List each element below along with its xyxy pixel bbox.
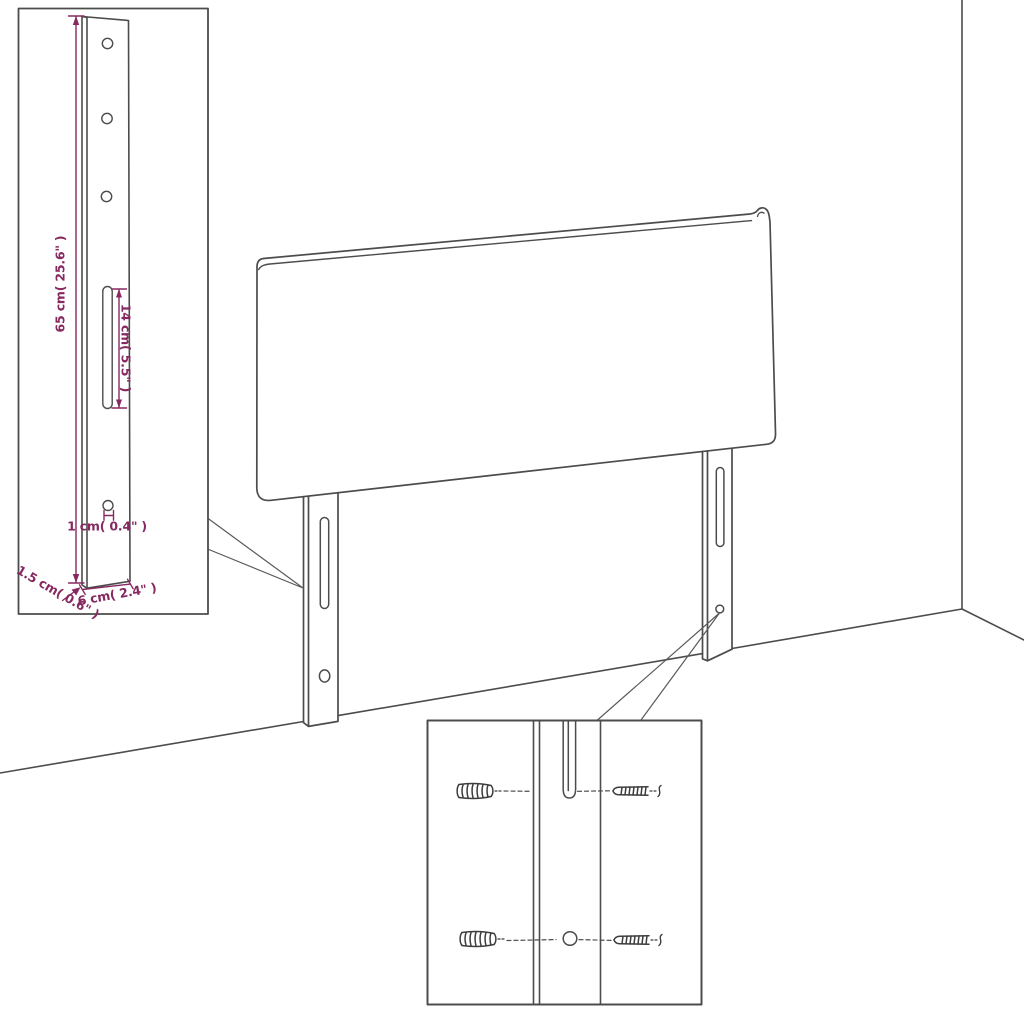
wall-plug-top [457, 784, 501, 799]
leg-left-hole [319, 670, 329, 682]
panel-top-right-curl [758, 212, 765, 216]
leg-right-outline [703, 448, 733, 661]
panel-outline [257, 208, 776, 501]
mounting-leg-strip [534, 721, 601, 1004]
inset-mounting-detail [428, 721, 702, 1005]
bracket-hole-2 [102, 113, 112, 123]
panel-top-inner-edge [259, 221, 752, 270]
bracket-slot [103, 287, 112, 409]
dim-arrow-65cm-top [73, 16, 79, 25]
bracket-outline [82, 17, 130, 589]
label-slot-length: 14 cm( 5.5" ) [119, 304, 134, 392]
dim-arrow-65cm-bottom [73, 574, 79, 583]
label-bracket-height: 65 cm( 25.6" ) [53, 236, 68, 333]
mounting-hole [563, 932, 577, 946]
bracket-hole-3 [101, 191, 111, 201]
floor-line-left [0, 609, 962, 773]
screw-bottom [614, 935, 662, 946]
headboard-panel [257, 208, 776, 501]
dim-arrow-14cm-top [116, 289, 122, 298]
leader-dashes [504, 791, 612, 941]
leg-right-hole [716, 605, 724, 613]
inset-mounting-border [428, 721, 702, 1005]
leg-left-slot [320, 518, 328, 609]
room-corner-lines [0, 0, 1024, 773]
callout-lines [209, 519, 720, 720]
dim-arrow-14cm-bottom [116, 400, 122, 409]
callout-to-mounting-inset [598, 613, 720, 720]
bracket-hole-4 [103, 501, 113, 511]
bracket-hole-1 [102, 38, 112, 48]
label-hole-diameter: 1 cm( 0.4" ) [67, 519, 147, 534]
floor-line-right [962, 609, 1024, 640]
headboard-leg-right [703, 448, 733, 661]
mounting-slot [563, 721, 575, 798]
callout-to-bracket-inset [209, 519, 303, 588]
wall-plug-bottom [460, 932, 504, 947]
diagram-lineart [0, 0, 1024, 1024]
leg-right-slot [716, 468, 724, 547]
headboard-leg-left [304, 493, 339, 727]
screw-top [613, 786, 661, 797]
diagram-canvas: 65 cm( 25.6" ) 14 cm( 5.5" ) 1 cm( 0.4" … [0, 0, 1024, 1024]
